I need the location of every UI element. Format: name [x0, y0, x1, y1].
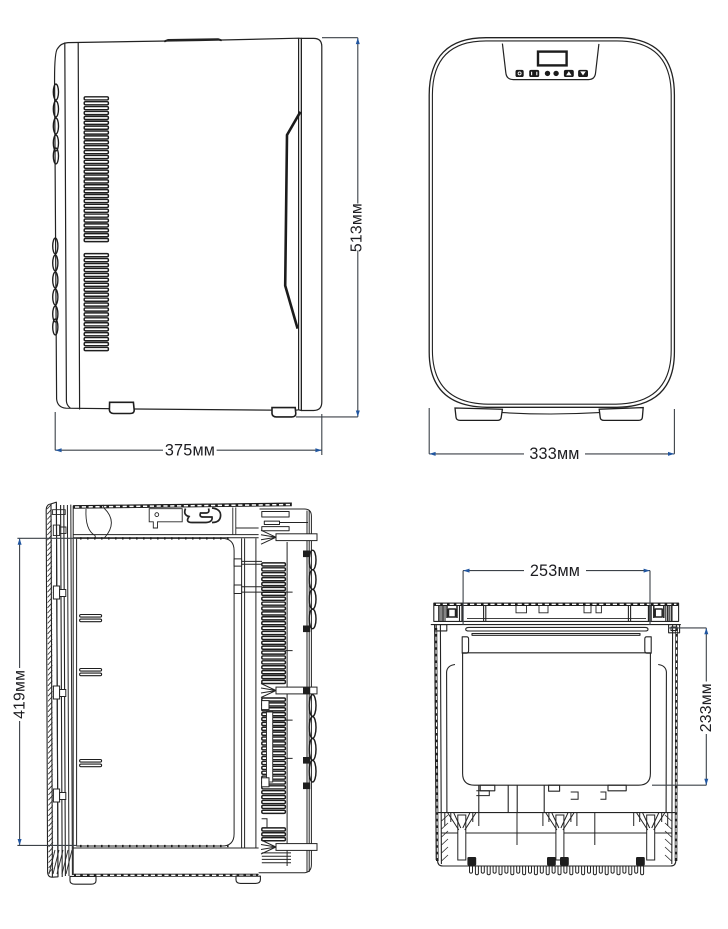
svg-text:253мм: 253мм: [530, 562, 580, 580]
svg-text:375мм: 375мм: [165, 441, 215, 459]
svg-text:513мм: 513мм: [349, 203, 366, 252]
svg-text:333мм: 333мм: [529, 445, 579, 463]
svg-text:419мм: 419мм: [12, 670, 29, 719]
svg-text:233мм: 233мм: [698, 683, 715, 732]
